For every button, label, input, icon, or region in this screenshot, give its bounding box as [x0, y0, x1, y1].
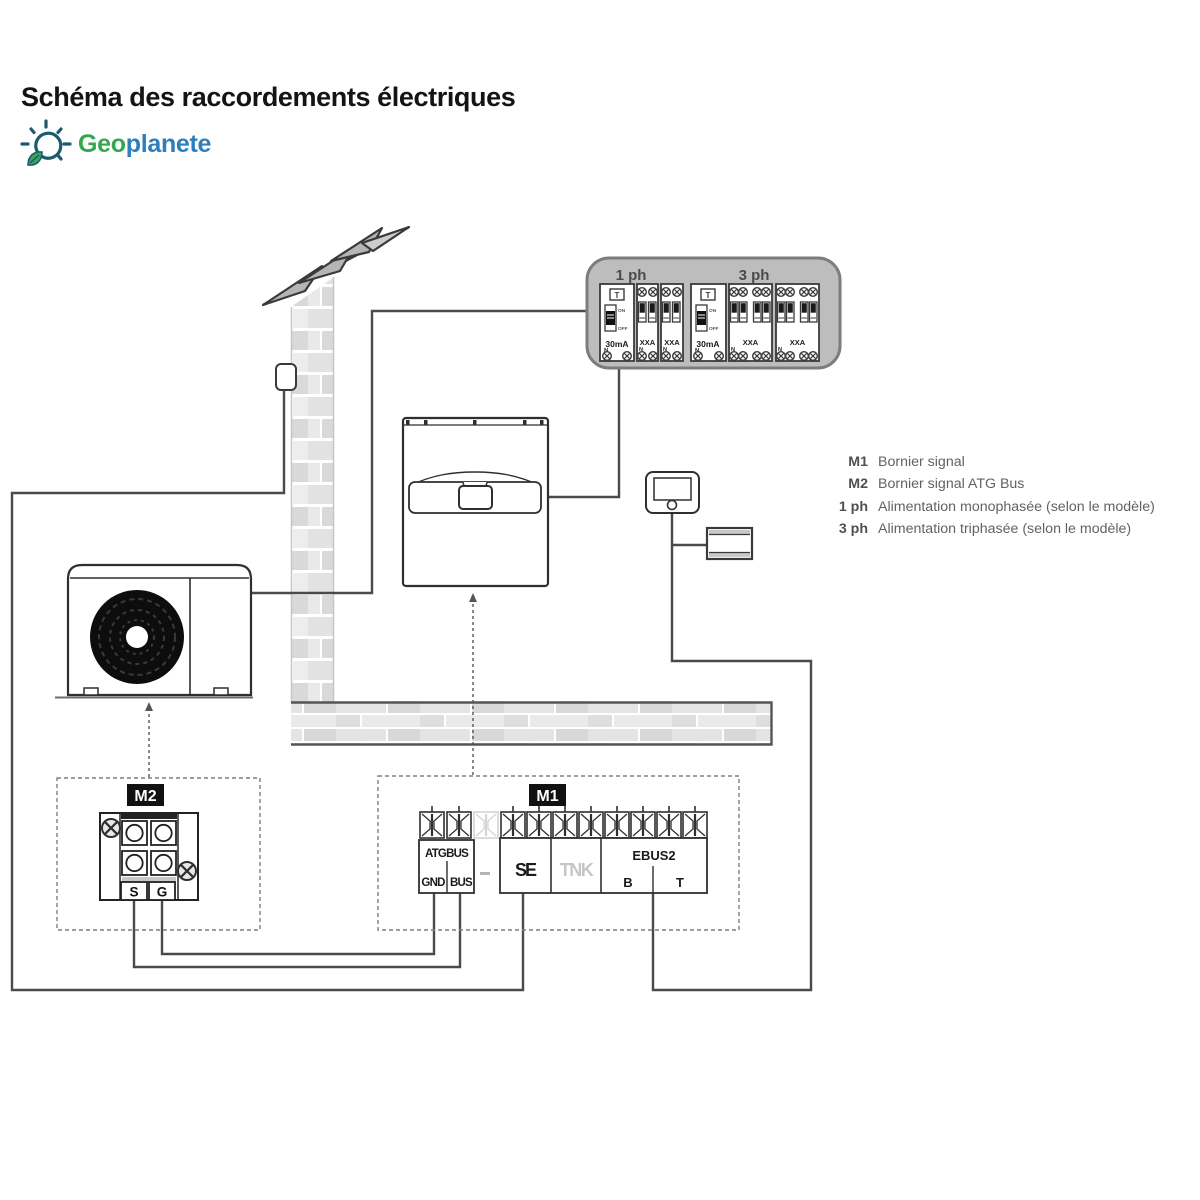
wiring-diagram: 1 ph 3 ph T ON OFF 30mA N XXA N: [0, 0, 1200, 1200]
ebus2-b-label: B: [623, 875, 632, 890]
wall-horizontal: [291, 702, 772, 745]
thermostat-button: [668, 501, 677, 510]
m2-terminal-block: M2 S G: [100, 784, 198, 900]
legend-key: 1 ph: [828, 499, 868, 515]
gnd-terminal-label: GND: [421, 877, 445, 889]
rcd-on-label: ON: [618, 308, 626, 314]
page-title: Schéma des raccordements électriques: [21, 82, 515, 113]
se-terminal-label: SE: [515, 860, 537, 880]
roof: [263, 227, 409, 305]
breaker-1ph-a: XXA N: [637, 284, 658, 361]
display-screen: [459, 486, 492, 509]
legend-row-3ph: 3 ph Alimentation triphasée (selon le mo…: [828, 521, 1155, 543]
legend-row-m2: M2 Bornier signal ATG Bus: [828, 476, 1155, 498]
tnk-terminal-label: TNK: [560, 860, 594, 880]
breaker-3ph-b: XXA N: [776, 284, 819, 361]
legend-row-m1: M1 Bornier signal: [828, 454, 1155, 476]
screw-icon: [102, 819, 120, 837]
rcd-rating-label: 30mA: [696, 339, 719, 349]
indoor-unit: [403, 418, 548, 586]
sun-leaf-icon: [20, 118, 72, 170]
legend: M1 Bornier signal M2 Bornier signal ATG …: [828, 454, 1155, 544]
atgbus-group-label: ATGBUS: [425, 848, 469, 860]
thermostat-screen: [654, 478, 691, 500]
m2-tag-label: M2: [134, 788, 156, 805]
breaker-1ph-b: XXA N: [661, 284, 683, 361]
ghost-terminal: [474, 812, 498, 838]
rcd-3ph: T ON OFF 30mA N: [691, 284, 726, 361]
rcd-test-button: T: [615, 291, 620, 300]
legend-value: Alimentation triphasée (selon le modèle): [878, 521, 1131, 537]
m1-terminal-block: M1 ATGBUS GND BUS SE TNK EBUS2 B T: [419, 784, 707, 893]
panel-section-3ph-label: 3 ph: [739, 267, 770, 284]
legend-value: Alimentation monophasée (selon le modèle…: [878, 499, 1155, 515]
geoplanete-logo: Geoplanete: [20, 118, 211, 170]
wall-vertical: [291, 277, 334, 702]
thermostat: [646, 472, 699, 513]
rcd-test-button: T: [706, 291, 711, 300]
screw-icon: [178, 862, 196, 880]
legend-row-1ph: 1 ph Alimentation monophasée (selon le m…: [828, 499, 1155, 521]
arrow-to-outdoor-unit: [145, 702, 153, 711]
breaker-rating-label: XXA: [640, 338, 656, 347]
outdoor-sensor: [276, 364, 296, 390]
bus-terminal-label: BUS: [450, 877, 473, 889]
rcd-off-label: OFF: [618, 326, 628, 332]
m1-tag-label: M1: [536, 788, 558, 805]
panel-section-1ph-label: 1 ph: [616, 267, 647, 284]
m2-terminal-g-label: G: [157, 885, 168, 900]
breaker-rating-label: XXA: [664, 338, 680, 347]
rcd-off-label: OFF: [709, 326, 719, 332]
legend-key: M1: [828, 454, 868, 470]
fan-icon: [90, 590, 184, 684]
legend-value: Bornier signal: [878, 454, 965, 470]
logo-geo: Geo: [78, 130, 126, 158]
legend-value: Bornier signal ATG Bus: [878, 476, 1024, 492]
ebus2-t-label: T: [676, 875, 684, 890]
rcd-on-label: ON: [709, 308, 717, 314]
arrow-to-indoor-unit: [469, 593, 477, 602]
outdoor-unit: [55, 565, 253, 698]
logo-planete: planete: [126, 130, 211, 158]
breaker-rating-label: XXA: [790, 338, 806, 347]
breaker-panel: 1 ph 3 ph T ON OFF 30mA N XXA N: [587, 258, 840, 368]
wiring-schematic-page: 1 ph 3 ph T ON OFF 30mA N XXA N: [0, 0, 1200, 1200]
rcd-1ph: T ON OFF 30mA N: [600, 284, 634, 361]
ebus2-group-label: EBUS2: [632, 848, 675, 863]
logo-wordmark: Geoplanete: [78, 130, 211, 159]
legend-key: 3 ph: [828, 521, 868, 537]
power-module: [707, 528, 752, 559]
continuation-dash: [480, 872, 490, 875]
breaker-rating-label: XXA: [743, 338, 759, 347]
wire-g-to-gnd: [162, 893, 434, 954]
unit-foot: [84, 688, 98, 695]
rcd-rating-label: 30mA: [605, 339, 628, 349]
breaker-3ph-a: XXA N: [729, 284, 772, 361]
legend-key: M2: [828, 476, 868, 492]
wire-panel-to-indoor-unit: [548, 368, 619, 497]
unit-foot: [214, 688, 228, 695]
wire-thermostat-to-ebus2: [653, 513, 811, 990]
m2-terminal-s-label: S: [129, 885, 138, 900]
